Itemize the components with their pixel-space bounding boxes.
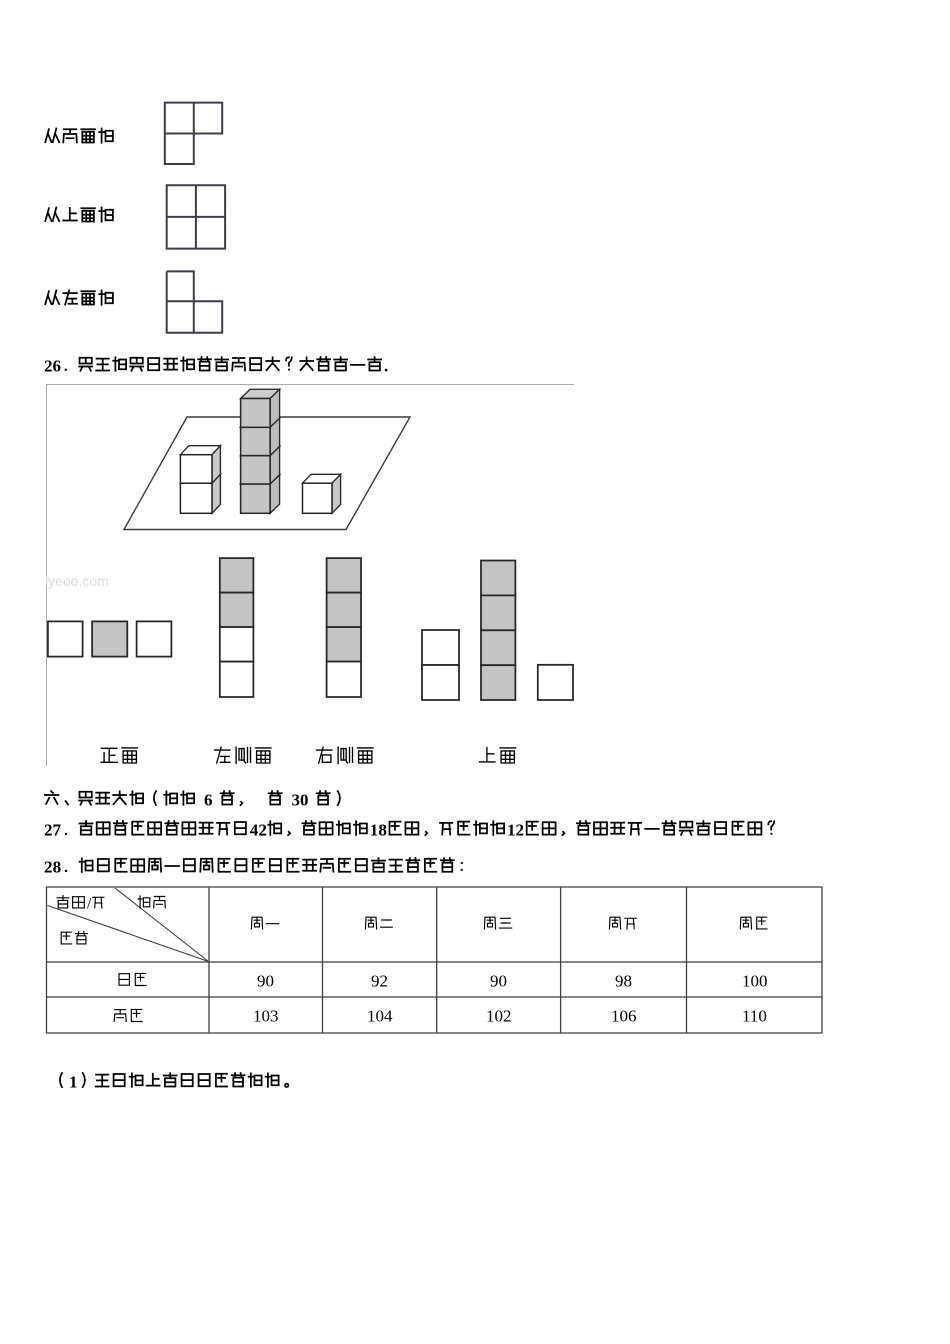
svg-text:6: 6: [204, 790, 213, 809]
svg-text:27: 27: [44, 821, 62, 840]
svg-text:12: 12: [507, 821, 524, 840]
svg-text:/: /: [87, 896, 92, 913]
svg-text:90: 90: [490, 971, 507, 990]
svg-text:102: 102: [486, 1007, 512, 1026]
svg-text:26: 26: [44, 356, 61, 375]
svg-text:.: .: [384, 356, 388, 375]
svg-text:100: 100: [742, 971, 768, 990]
svg-text:1: 1: [69, 1072, 78, 1091]
svg-text:98: 98: [615, 971, 632, 990]
svg-text:18: 18: [370, 821, 387, 840]
svg-text:42: 42: [250, 821, 267, 840]
svg-text:90: 90: [257, 971, 274, 990]
svg-text:106: 106: [611, 1007, 637, 1026]
svg-text:92: 92: [371, 971, 388, 990]
svg-text:103: 103: [253, 1007, 279, 1026]
svg-text:28: 28: [44, 858, 62, 877]
svg-text:104: 104: [367, 1007, 393, 1026]
svg-text:110: 110: [742, 1007, 767, 1026]
svg-text:30: 30: [292, 790, 309, 809]
